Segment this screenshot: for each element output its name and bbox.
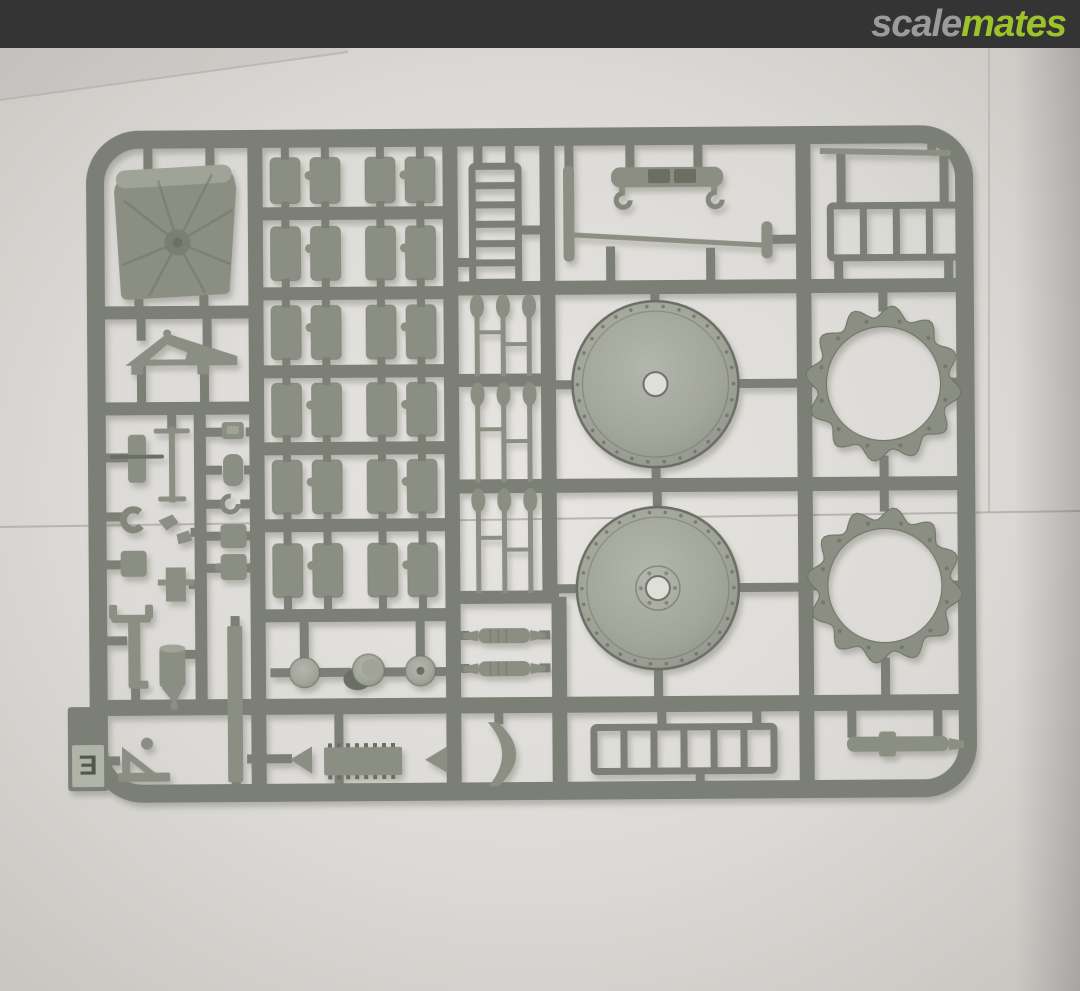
scalemates-logo[interactable]: scalemates xyxy=(871,0,1080,48)
box-part xyxy=(367,459,397,513)
box-part xyxy=(311,383,341,437)
box-part xyxy=(366,382,396,436)
logo-text-scale: scale xyxy=(871,3,961,45)
sprue-photo-page: scalemates xyxy=(0,0,1080,991)
toothed-plate-part xyxy=(324,745,402,778)
sprue-letter-e: E xyxy=(79,750,98,781)
logo-text-mates: mates xyxy=(961,3,1066,45)
thin-rod-part xyxy=(820,150,951,154)
box-part xyxy=(407,459,437,513)
sprue-photo: E xyxy=(0,0,1080,991)
ladder-frame-part xyxy=(472,166,519,282)
box-part xyxy=(408,543,438,597)
box-part xyxy=(405,226,435,280)
box-part xyxy=(313,543,343,597)
box-part xyxy=(406,305,436,359)
dome-part-1 xyxy=(289,657,319,687)
box-part xyxy=(271,383,301,437)
box-part xyxy=(312,460,342,514)
box-part xyxy=(272,460,302,514)
box-part xyxy=(310,157,340,203)
box-part xyxy=(273,544,303,598)
sprue-letter-tab: E xyxy=(68,707,109,791)
road-wheel-disc xyxy=(576,507,739,670)
box-part xyxy=(366,305,396,359)
box-part xyxy=(365,226,395,280)
box-part xyxy=(310,226,340,280)
road-wheel-disc xyxy=(572,301,739,468)
backdrop-right-shadow xyxy=(1015,48,1080,991)
box-part xyxy=(271,306,301,360)
box-part xyxy=(270,158,300,204)
box-part xyxy=(365,157,395,203)
box-part xyxy=(270,227,300,281)
site-header-bar: scalemates xyxy=(0,0,1080,48)
box-part xyxy=(368,543,398,597)
long-plank-part xyxy=(227,626,243,782)
box-part xyxy=(405,157,435,203)
dome-part-2 xyxy=(405,656,435,686)
ladder-frame-part xyxy=(594,726,774,771)
gun-mount-shield-part xyxy=(114,164,237,300)
box-part xyxy=(406,382,436,436)
box-part xyxy=(311,305,341,359)
square-block-part xyxy=(121,551,147,577)
